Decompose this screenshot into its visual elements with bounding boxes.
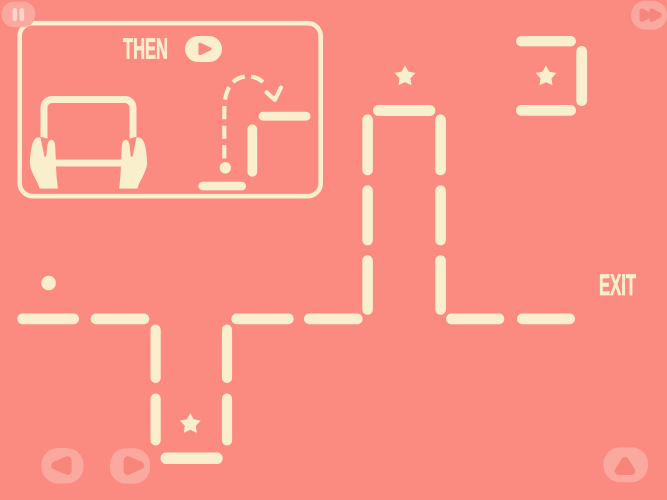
svg-text:THEN: THEN bbox=[123, 33, 168, 65]
svg-text:EXIT: EXIT bbox=[599, 269, 636, 302]
